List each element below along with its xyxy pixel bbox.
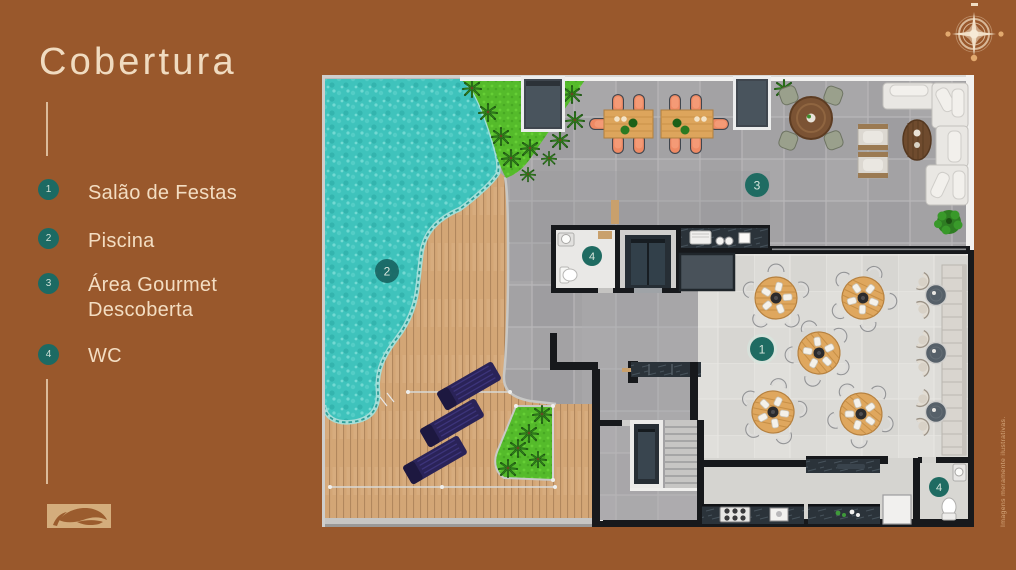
svg-text:2: 2 [384,265,391,279]
svg-text:1: 1 [759,343,766,357]
svg-text:4: 4 [589,251,595,263]
svg-text:4: 4 [936,482,942,494]
svg-text:3: 3 [754,179,761,193]
